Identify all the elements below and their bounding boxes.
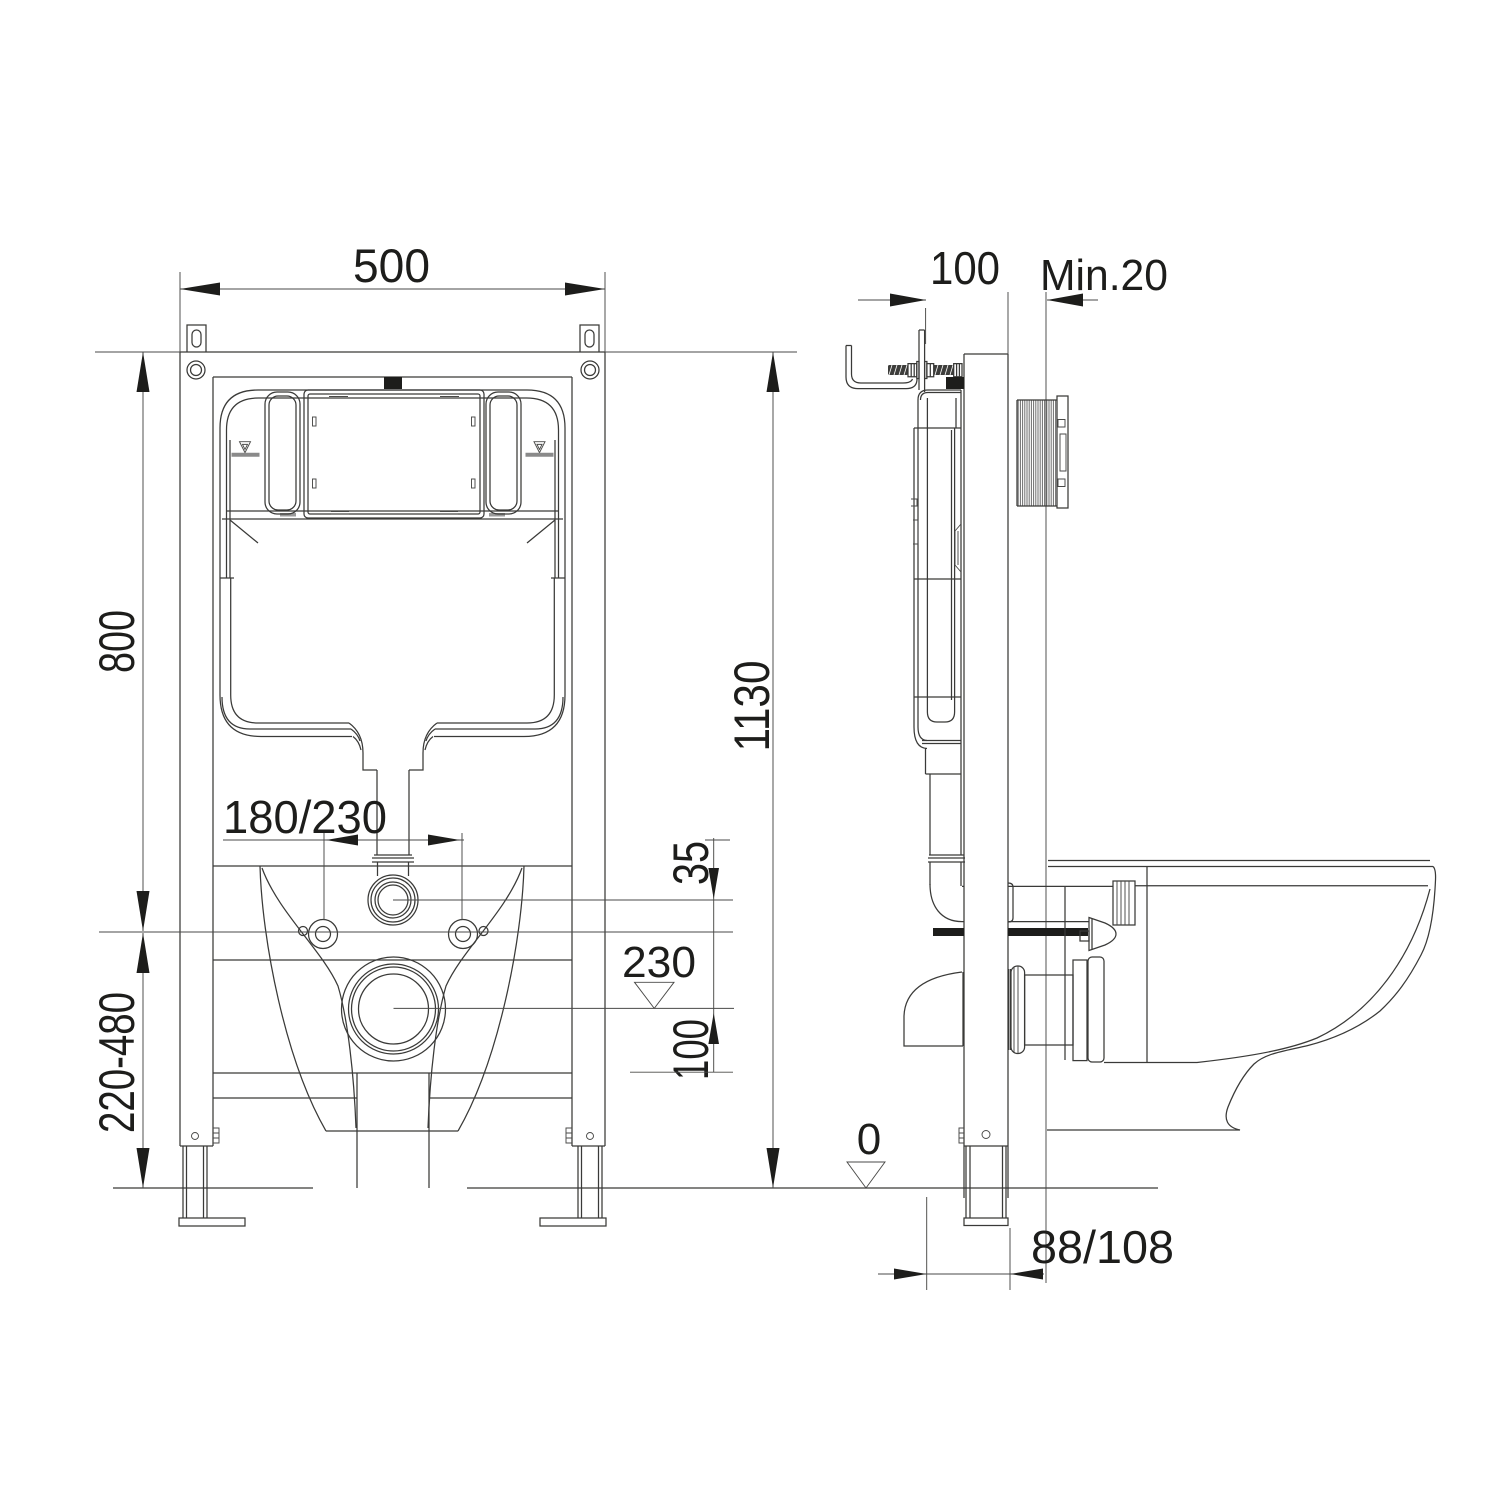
svg-text:230: 230 [622,938,696,987]
svg-text:100: 100 [663,1019,719,1080]
svg-text:Min.20: Min.20 [1040,251,1168,300]
svg-text:1130: 1130 [724,661,780,752]
svg-text:800: 800 [89,610,145,673]
svg-text:88/108: 88/108 [1031,1221,1174,1273]
svg-text:220-480: 220-480 [89,992,145,1133]
svg-text:180/230: 180/230 [223,791,387,843]
svg-text:0: 0 [857,1115,881,1164]
svg-text:500: 500 [353,239,430,292]
svg-text:100: 100 [930,242,1000,294]
